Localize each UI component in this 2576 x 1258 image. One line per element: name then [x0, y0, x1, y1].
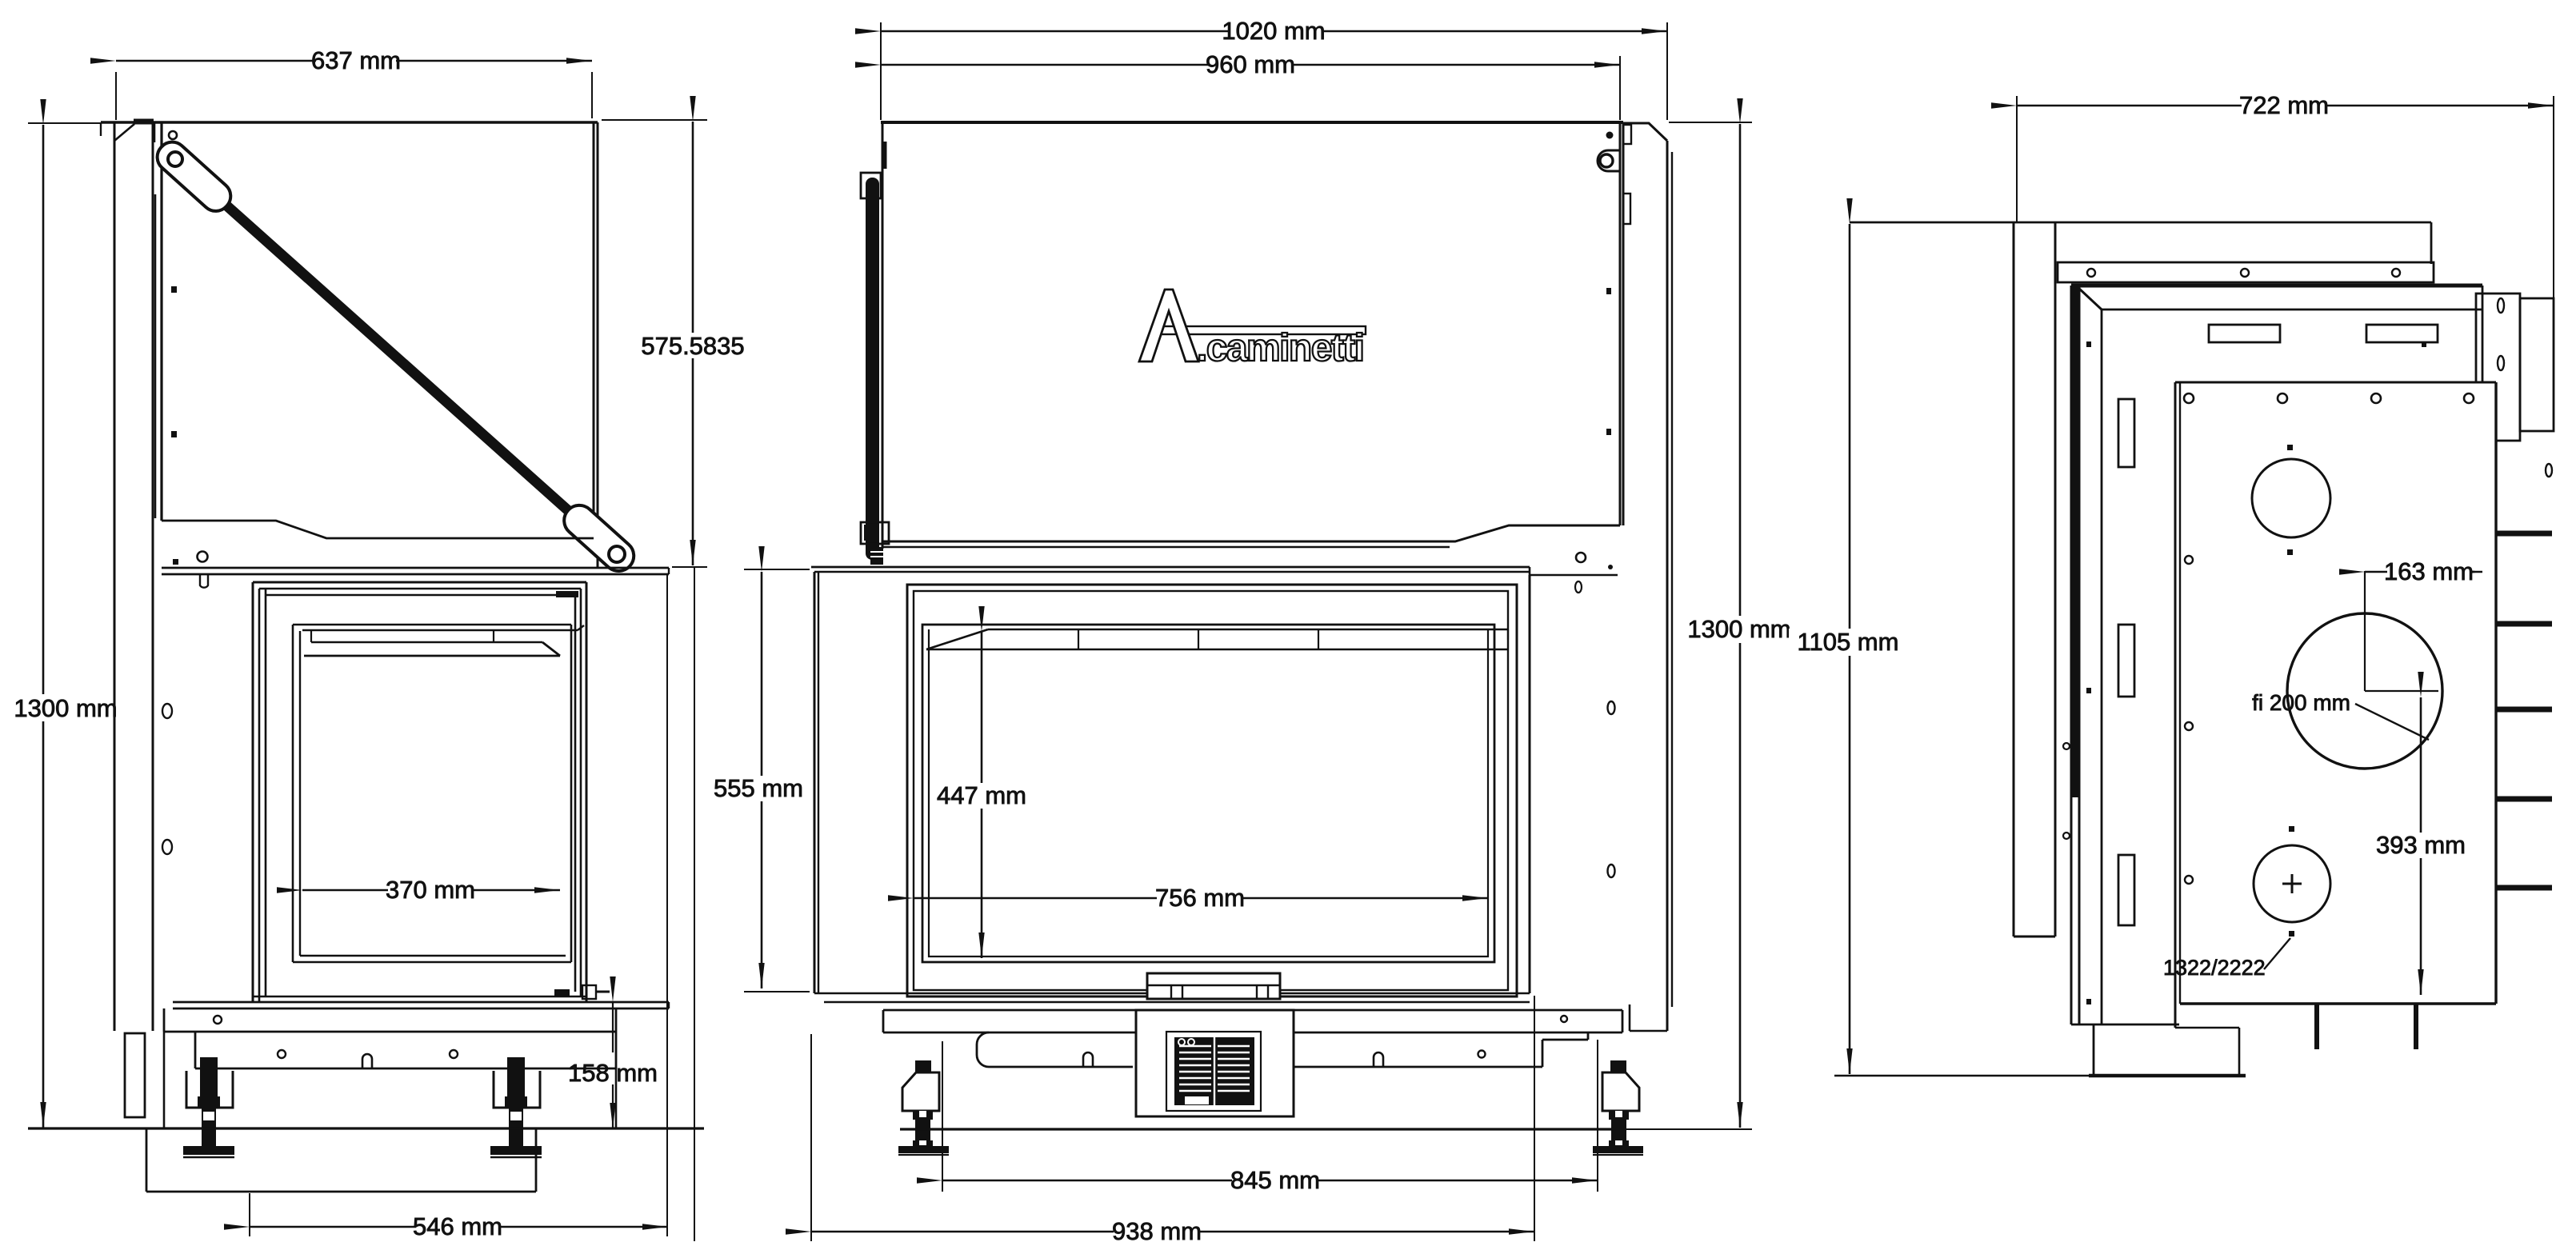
svg-text:1020 mm: 1020 mm	[1222, 17, 1325, 45]
svg-text:637 mm: 637 mm	[311, 46, 401, 74]
svg-text:393 mm: 393 mm	[2376, 831, 2466, 859]
svg-text:1300 mm: 1300 mm	[1687, 615, 1790, 643]
svg-text:163 mm: 163 mm	[2384, 557, 2474, 585]
svg-text:756 mm: 756 mm	[1155, 884, 1245, 912]
svg-text:.caminetti: .caminetti	[1197, 327, 1365, 369]
svg-text:447 mm: 447 mm	[937, 781, 1026, 809]
svg-text:960 mm: 960 mm	[1206, 50, 1295, 78]
svg-text:546 mm: 546 mm	[413, 1212, 502, 1240]
svg-text:1322/2222: 1322/2222	[2163, 956, 2266, 980]
svg-text:1300 mm: 1300 mm	[14, 694, 117, 722]
svg-text:1105 mm: 1105 mm	[1798, 628, 1899, 656]
svg-text:555 mm: 555 mm	[714, 774, 803, 802]
svg-text:845 mm: 845 mm	[1230, 1166, 1320, 1194]
svg-text:fi 200 mm: fi 200 mm	[2252, 690, 2350, 715]
svg-text:722 mm: 722 mm	[2239, 91, 2329, 119]
svg-text:370 mm: 370 mm	[386, 876, 475, 904]
svg-text:158 mm: 158 mm	[568, 1059, 658, 1087]
svg-text:575.5835: 575.5835	[641, 332, 744, 360]
svg-text:938 mm: 938 mm	[1112, 1217, 1202, 1245]
